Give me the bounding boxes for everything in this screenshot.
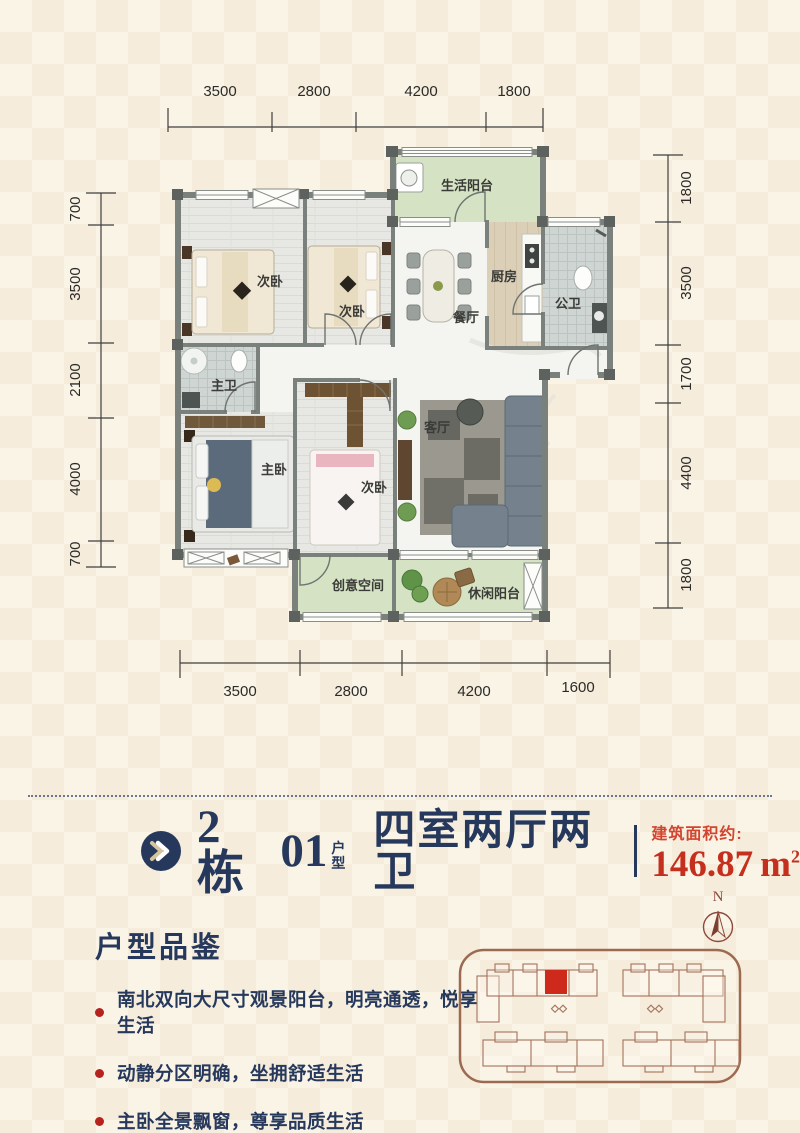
kitchen-counter-icon — [522, 234, 542, 342]
dim-label: 4000 — [67, 462, 84, 495]
floor-plan: 生活阳台 次卧 次卧 餐厅 厨房 公卫 主卫 主卧 次卧 客厅 创意空间 休闲阳… — [0, 0, 800, 745]
room-label: 主卫 — [211, 378, 237, 393]
area-label: 建筑面积约: — [651, 820, 800, 844]
dim-label: 3500 — [223, 683, 256, 700]
room-label: 次卧 — [257, 274, 283, 289]
dim-label: 1800 — [678, 171, 695, 204]
unit-type-char: 户 — [331, 841, 345, 856]
building-number: 2栋 — [197, 804, 260, 898]
room-label: 生活阳台 — [441, 178, 493, 193]
feature-item: 南北双向大尺寸观景阳台，明亮通透，悦享生活 — [95, 986, 485, 1038]
bullet-dot — [95, 1008, 104, 1017]
area-number: 146.87 — [651, 844, 753, 885]
dim-label: 4400 — [678, 456, 695, 489]
north-arrow-icon — [700, 907, 736, 943]
unit-type-label: 户型 — [331, 841, 345, 872]
north-compass: N — [698, 890, 738, 948]
layout-text: 四室两厅两卫 — [373, 809, 610, 893]
room-label: 次卧 — [339, 304, 365, 319]
feature-text: 主卧全景飘窗，尊享品质生活 — [117, 1108, 364, 1133]
area-superscript: 2 — [791, 846, 800, 866]
area-block: 建筑面积约: 146.87m2 — [651, 820, 800, 883]
room-label: 餐厅 — [452, 310, 479, 325]
washing-machine-icon — [396, 163, 423, 192]
entry-gap — [560, 371, 598, 379]
bullet-dot — [95, 1117, 104, 1126]
room-label: 休闲阳台 — [467, 586, 520, 601]
feature-text: 动静分区明确，坐拥舒适生活 — [117, 1060, 364, 1086]
dim-label: 1800 — [497, 83, 530, 100]
dim-label: 4200 — [457, 683, 490, 700]
features-heading: 户型品鉴 — [95, 924, 485, 966]
room-label: 公卫 — [555, 296, 581, 311]
dim-label: 3500 — [678, 266, 695, 299]
chevron-badge-icon — [140, 830, 182, 872]
features-section: 户型品鉴 南北双向大尺寸观景阳台，明亮通透，悦享生活 动静分区明确，坐拥舒适生活… — [95, 924, 485, 1133]
sofa-icon — [420, 396, 547, 547]
room-label: 客厅 — [424, 420, 450, 435]
dim-label: 2800 — [334, 683, 367, 700]
dim-label: 1600 — [561, 679, 594, 696]
unit-type-char: 型 — [331, 856, 345, 871]
dim-label: 3500 — [203, 83, 236, 100]
flyer-page: 生活阳台 次卧 次卧 餐厅 厨房 公卫 主卫 主卧 次卧 客厅 创意空间 休闲阳… — [0, 0, 800, 1133]
dim-label: 4200 — [404, 83, 437, 100]
unit-number: 01 — [280, 828, 327, 875]
dim-label: 2100 — [67, 363, 84, 396]
room-label: 创意空间 — [331, 578, 384, 593]
feature-text: 南北双向大尺寸观景阳台，明亮通透，悦享生活 — [117, 986, 485, 1038]
area-value: 146.87m2 — [651, 846, 800, 883]
room-label: 厨房 — [491, 269, 517, 284]
unit-title: 2栋 01 户型 四室两厅两卫 — [182, 804, 610, 898]
dim-label: 700 — [67, 541, 84, 566]
area-unit: m — [760, 844, 791, 885]
bed-icon — [310, 450, 380, 545]
bullet-dot — [95, 1069, 104, 1078]
dotted-separator — [28, 795, 772, 797]
title-bar: 2栋 01 户型 四室两厅两卫 建筑面积约: 146.87m2 — [140, 820, 800, 882]
dim-label: 2800 — [297, 83, 330, 100]
highlighted-unit — [545, 970, 567, 994]
dim-label: 3500 — [67, 267, 84, 300]
building-outlines — [477, 964, 739, 1072]
north-label: N — [698, 890, 738, 905]
bed-icon — [182, 246, 274, 336]
features-list: 南北双向大尺寸观景阳台，明亮通透，悦享生活 动静分区明确，坐拥舒适生活 主卧全景… — [95, 986, 485, 1133]
room-label: 次卧 — [361, 480, 387, 495]
room-label: 主卧 — [261, 462, 287, 477]
dim-label: 700 — [67, 196, 84, 221]
dim-label: 1800 — [678, 558, 695, 591]
feature-item: 动静分区明确，坐拥舒适生活 — [95, 1060, 485, 1086]
site-plan — [457, 946, 747, 1090]
title-divider — [634, 825, 637, 877]
feature-item: 主卧全景飘窗，尊享品质生活 — [95, 1108, 485, 1133]
dim-label: 1700 — [678, 357, 695, 390]
